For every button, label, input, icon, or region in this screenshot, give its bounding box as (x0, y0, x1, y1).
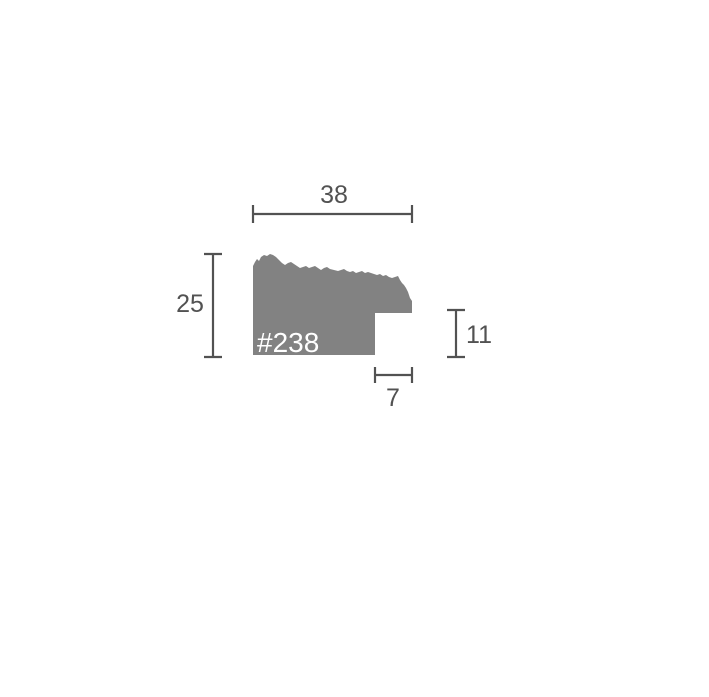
dimension-bottom-step-width-line (375, 367, 412, 383)
diagram-svg: 38 25 11 7 #238 (0, 0, 709, 697)
moulding-cross-section-diagram: 38 25 11 7 #238 (0, 0, 709, 697)
dimension-left-height-label: 25 (176, 290, 204, 318)
dimension-right-step-height-label: 11 (466, 321, 492, 349)
dimension-bottom-step-width-label: 7 (386, 384, 400, 412)
dimension-top-width-label: 38 (320, 181, 348, 209)
profile-number-label: #238 (257, 327, 319, 358)
dimension-right-step-height-line (447, 310, 465, 357)
dimension-left-height-line (204, 254, 222, 357)
